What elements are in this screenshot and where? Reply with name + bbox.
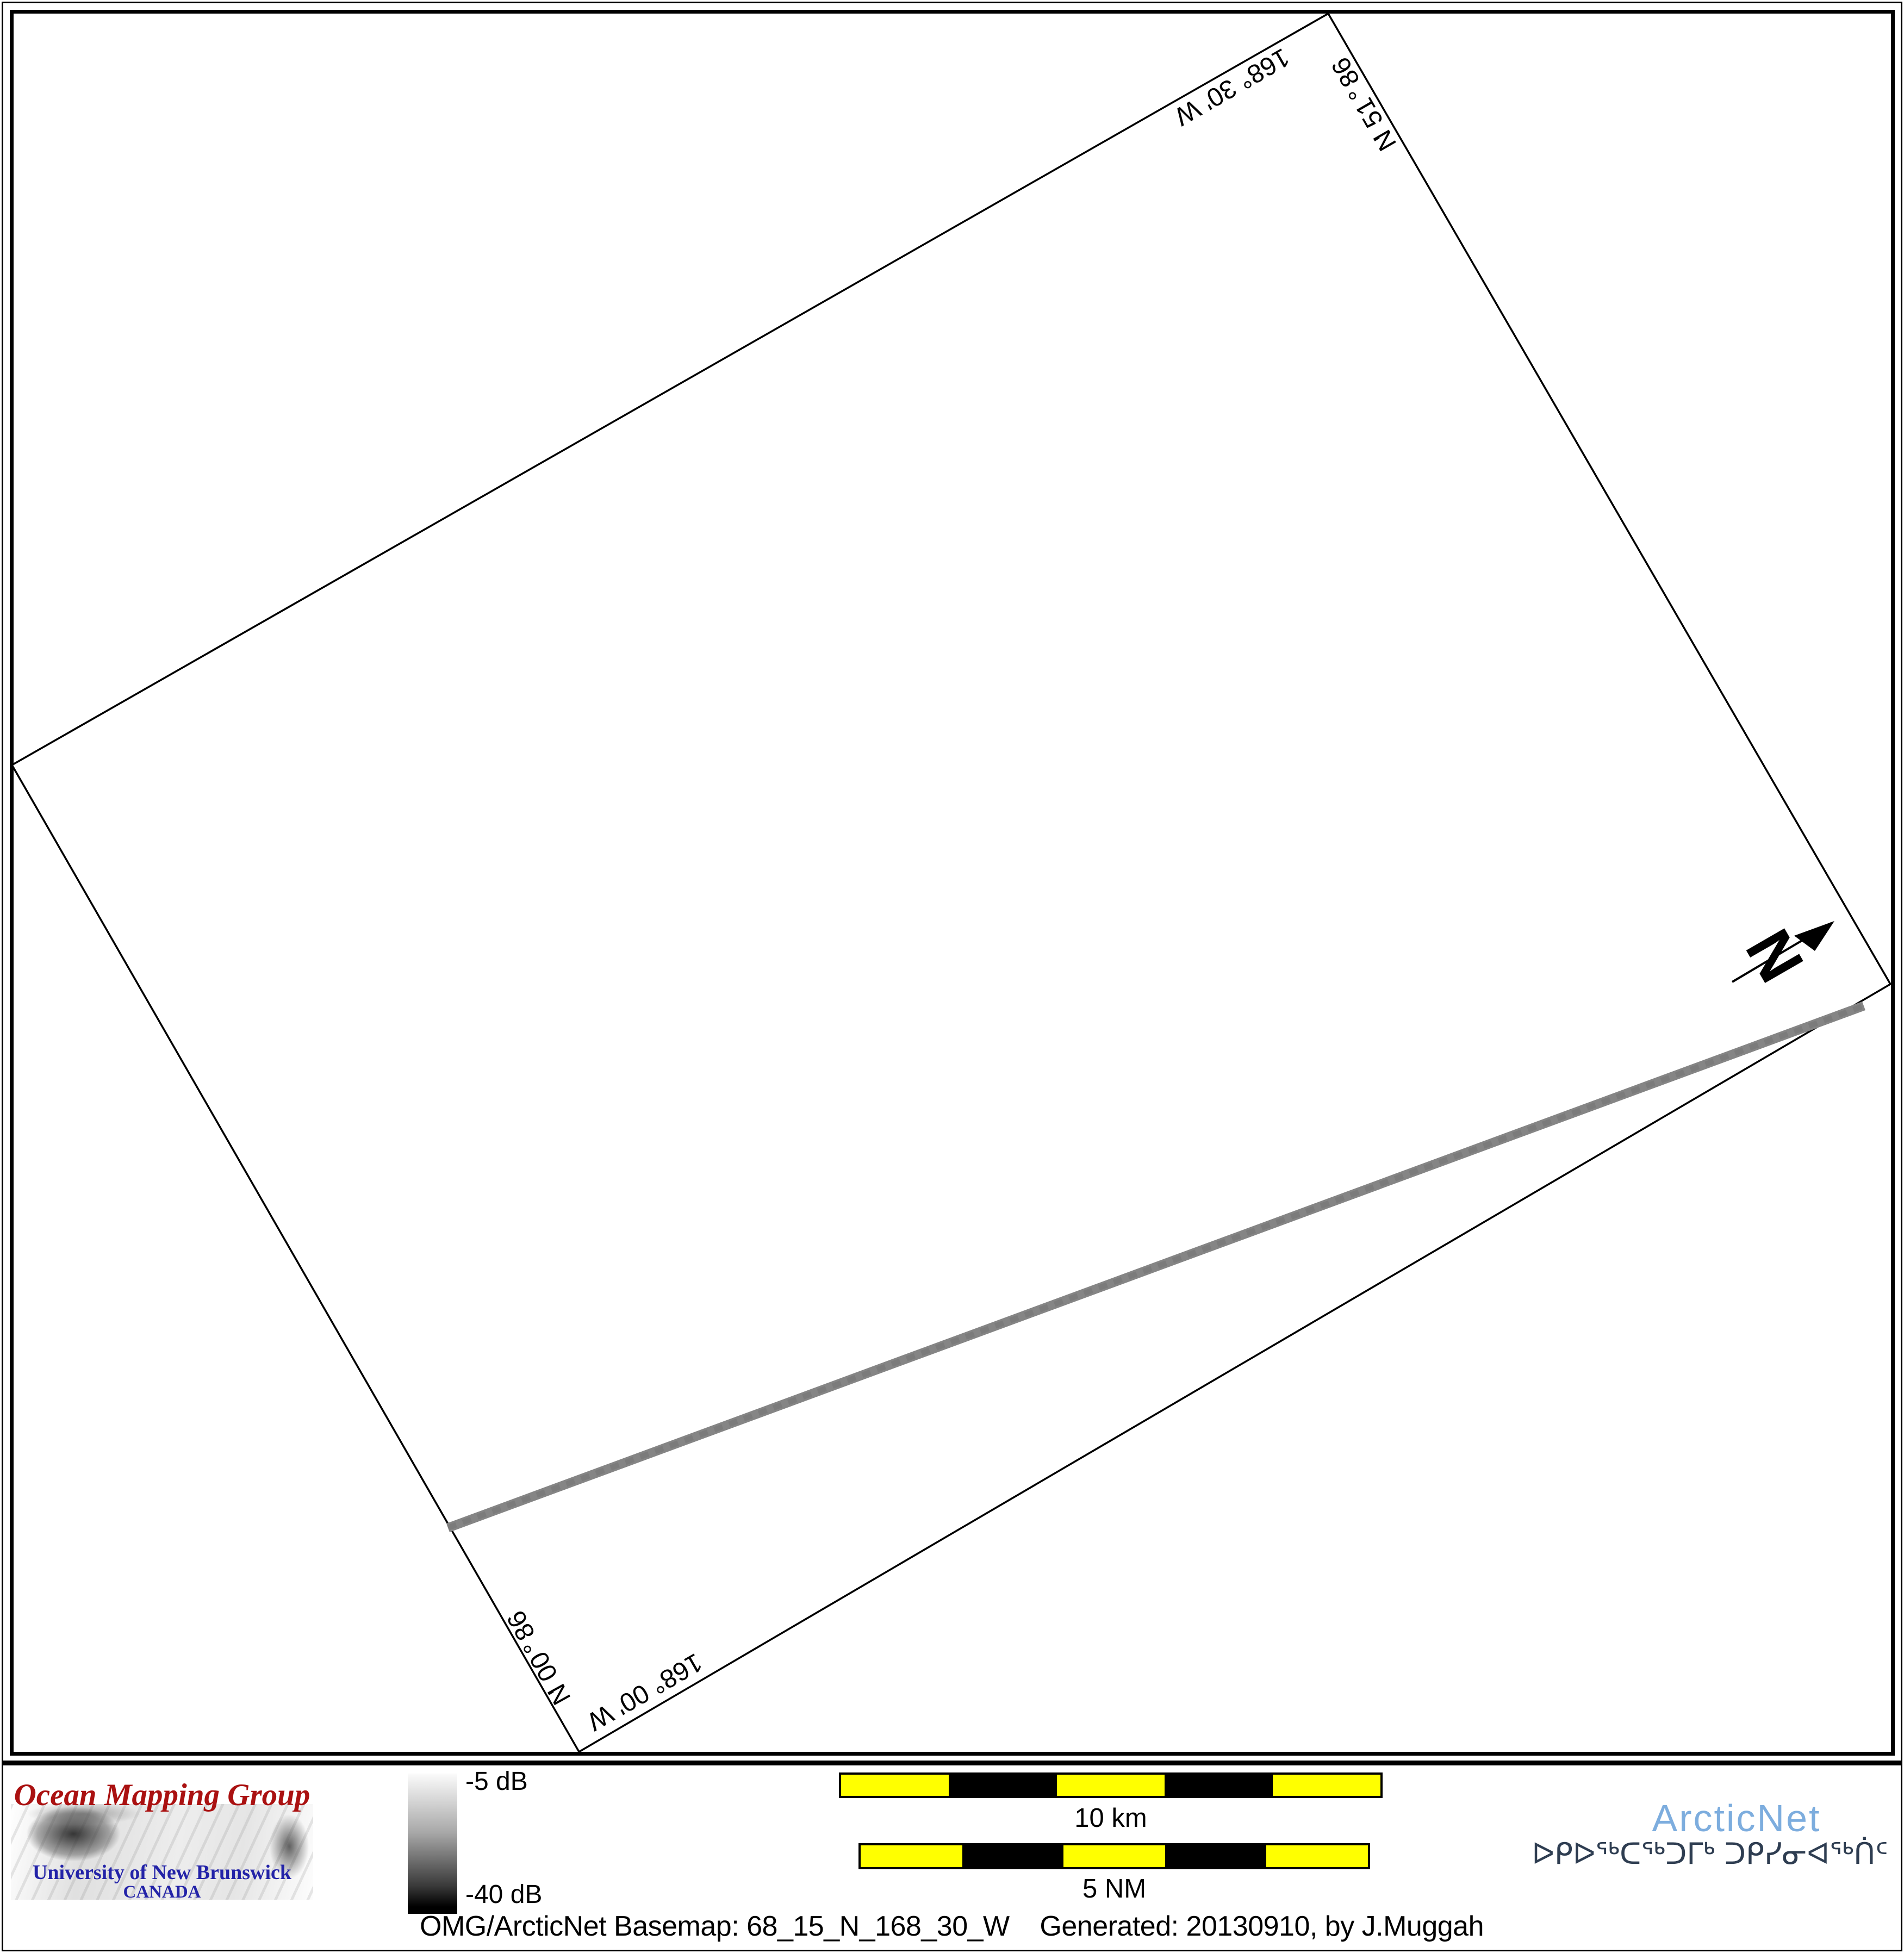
legend-separator: [3, 1761, 1901, 1765]
omg-logo-title: Ocean Mapping Group: [11, 1778, 313, 1813]
scalebar-km-label: 10 km: [839, 1803, 1383, 1833]
scalebar-nm: [858, 1843, 1370, 1869]
scalebar-segment: [962, 1845, 1064, 1867]
scalebar-segment: [1057, 1775, 1165, 1796]
scalebar-segment: [1165, 1845, 1267, 1867]
basemap-page: 168° 30' W 68° 15' N 68° 00' N 168° 00' …: [0, 0, 1904, 1953]
survey-boundary-outline: [12, 14, 1890, 1752]
arcticnet-logo: ArcticNet: [1573, 1797, 1900, 1839]
omg-logo-university: University of New Brunswick: [11, 1861, 313, 1884]
omg-logo-country: CANADA: [11, 1882, 313, 1902]
scalebar-nm-label: 5 NM: [858, 1874, 1370, 1904]
omg-logo: Ocean Mapping Group University of New Br…: [11, 1776, 313, 1899]
colorbar-min-label: -40 dB: [465, 1880, 542, 1910]
scalebar-segment: [1063, 1845, 1165, 1867]
scalebar-segment: [1273, 1775, 1380, 1796]
basemap-caption: OMG/ArcticNet Basemap: 68_15_N_168_30_W …: [420, 1911, 1484, 1942]
map-canvas: 168° 30' W 68° 15' N 68° 00' N 168° 00' …: [0, 0, 1904, 1953]
scalebar-segment: [1165, 1775, 1272, 1796]
scalebar-segment: [1266, 1845, 1368, 1867]
colorbar-max-label: -5 dB: [465, 1767, 528, 1796]
scalebar-segment: [861, 1845, 962, 1867]
scalebar-km: [839, 1772, 1383, 1798]
arcticnet-inuktitut: ᐅᑭᐅᖅᑕᖅᑐᒥᒃ ᑐᑭᓯᓂᐊᖅᑏᑦ: [1517, 1838, 1903, 1870]
scalebar-segment: [841, 1775, 949, 1796]
backscatter-colorbar: [408, 1774, 457, 1914]
scalebar-segment: [949, 1775, 1056, 1796]
